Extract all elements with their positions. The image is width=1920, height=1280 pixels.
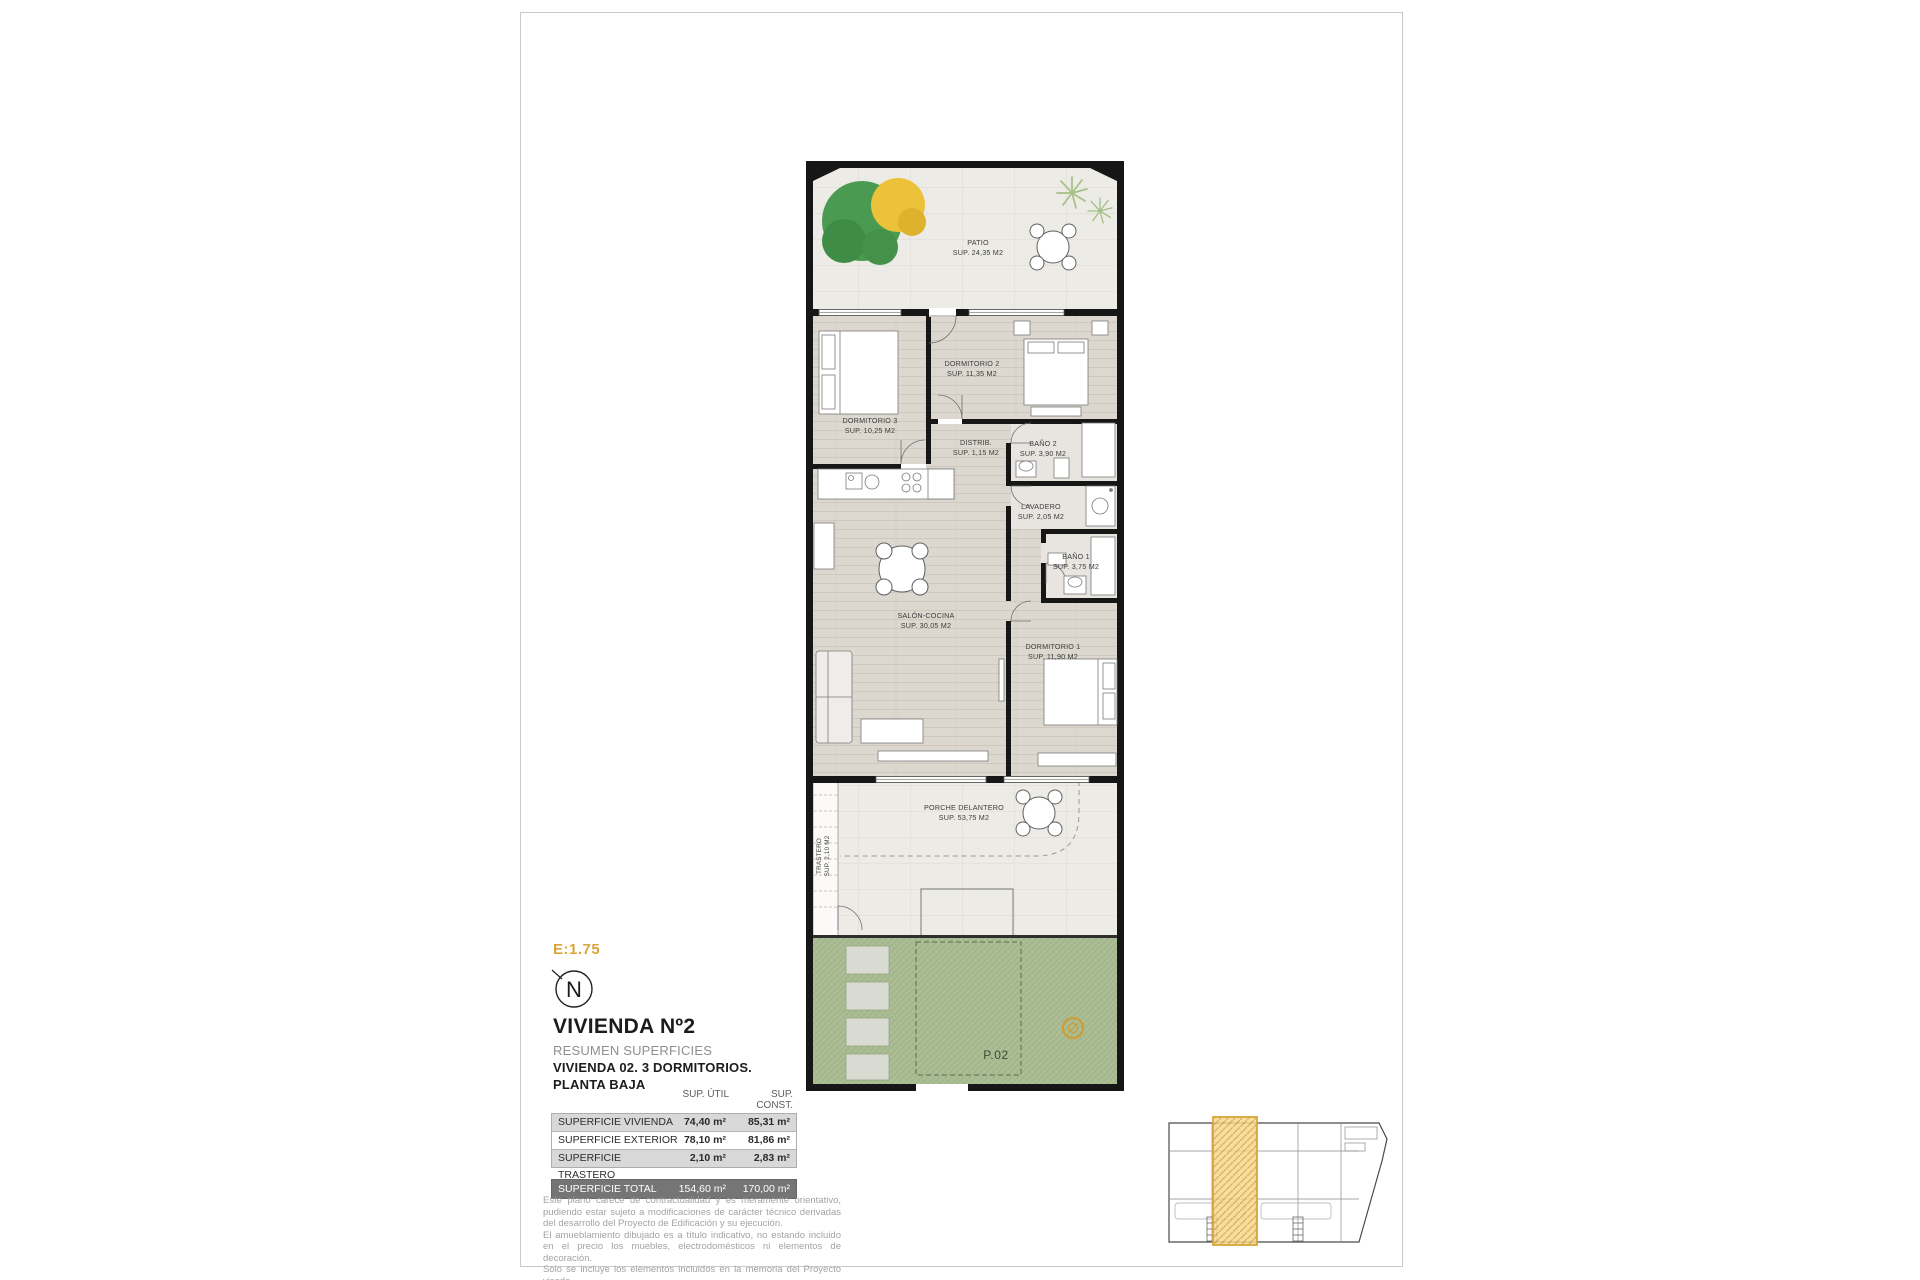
table-row-trastero: SUPERFICIE TRASTERO 2,10 m² 2,83 m² (552, 1150, 796, 1167)
svg-text:N: N (566, 977, 582, 1002)
svg-text:SUP. 2,05 M2: SUP. 2,05 M2 (1018, 512, 1064, 521)
room-label-laundry: LAVADERO (1021, 502, 1061, 511)
disclaimer-text: Este plano carece de contractualidad y e… (543, 1195, 841, 1280)
laundry-fixtures (1086, 486, 1115, 526)
room-label-bath1: BAÑO 1 (1062, 552, 1090, 561)
keyplan-internals (1169, 1123, 1377, 1242)
plan-sheet: PATIO SUP. 24,35 M2 DORMITORIO 2 SUP. 11… (520, 12, 1403, 1267)
col-header-util: SUP. ÚTIL (677, 1089, 733, 1111)
subtitle-resumen: RESUMEN SUPERFICIES (553, 1043, 752, 1058)
title-block: VIVIENDA Nº2 RESUMEN SUPERFICIES VIVIEND… (553, 1015, 752, 1092)
table-row-vivienda: SUPERFICIE VIVIENDA 74,40 m² 85,31 m² (552, 1114, 796, 1132)
col-header-const: SUP. CONST. (733, 1089, 797, 1111)
table-row-exterior: SUPERFICIE EXTERIOR 78,10 m² 81,86 m² (552, 1132, 796, 1150)
room-label-distrib: DISTRIB. (960, 438, 992, 447)
scale-label: E:1.75 (553, 941, 600, 958)
surface-table: SUP. ÚTIL SUP. CONST. SUPERFICIE VIVIEND… (551, 1089, 797, 1199)
keyplan-outline (1169, 1123, 1387, 1242)
room-label-bath2: BAÑO 2 (1029, 439, 1057, 448)
keyplan-highlighted-unit (1213, 1117, 1257, 1245)
page-title: VIVIENDA Nº2 (553, 1015, 752, 1039)
disclaimer-p1: Este plano carece de contractualidad y e… (543, 1195, 841, 1230)
room-label-dorm1: DORMITORIO 1 (1026, 642, 1081, 651)
room-label-dorm3: DORMITORIO 3 (843, 416, 898, 425)
svg-text:SUP. 11,35 M2: SUP. 11,35 M2 (947, 369, 997, 378)
svg-text:SUP. 3,90 M2: SUP. 3,90 M2 (1020, 449, 1066, 458)
page: PATIO SUP. 24,35 M2 DORMITORIO 2 SUP. 11… (0, 0, 1920, 1280)
svg-text:SUP. 3,75 M2: SUP. 3,75 M2 (1053, 562, 1099, 571)
porch-table-set (1016, 790, 1062, 836)
svg-text:TRASTERO: TRASTERO (816, 838, 823, 874)
room-label-salon: SALÓN-COCINA (897, 611, 954, 620)
surface-table-header: SUP. ÚTIL SUP. CONST. (551, 1089, 797, 1111)
room-label-porch: PORCHE DELANTERO (924, 803, 1004, 812)
room-label-storage: TRASTERO SUP. 2,10 M2 (816, 835, 831, 876)
dining-table-set (876, 543, 928, 595)
parking-label: P.02 (983, 1048, 1009, 1062)
disclaimer-p2: El amueblamiento dibujado es a título in… (543, 1230, 841, 1265)
svg-text:SUP. 2,10 M2: SUP. 2,10 M2 (824, 835, 831, 876)
room-label-dorm2: DORMITORIO 2 (945, 359, 1000, 368)
svg-text:SUP. 1,15 M2: SUP. 1,15 M2 (953, 448, 999, 457)
patio-table-set (1030, 224, 1076, 270)
svg-text:SUP. 11,90 M2: SUP. 11,90 M2 (1028, 652, 1078, 661)
bed-dorm3 (819, 331, 898, 414)
room-label-patio: PATIO (967, 238, 989, 247)
svg-text:SUP. 10,25 M2: SUP. 10,25 M2 (845, 426, 895, 435)
subtitle-vivienda: VIVIENDA 02. 3 DORMITORIOS. (553, 1060, 752, 1075)
floor-plan-drawing: PATIO SUP. 24,35 M2 DORMITORIO 2 SUP. 11… (806, 161, 1124, 1091)
key-plan (1149, 1099, 1394, 1271)
svg-text:SUP. 30,05 M2: SUP. 30,05 M2 (901, 621, 951, 630)
svg-text:SUP. 24,35 M2: SUP. 24,35 M2 (953, 248, 1003, 257)
sofa (816, 651, 852, 743)
north-arrow-icon: N (547, 961, 599, 1013)
disclaimer-p3: Solo se incluye los elementos incluidos … (543, 1264, 841, 1280)
svg-text:SUP. 53,75 M2: SUP. 53,75 M2 (939, 813, 989, 822)
